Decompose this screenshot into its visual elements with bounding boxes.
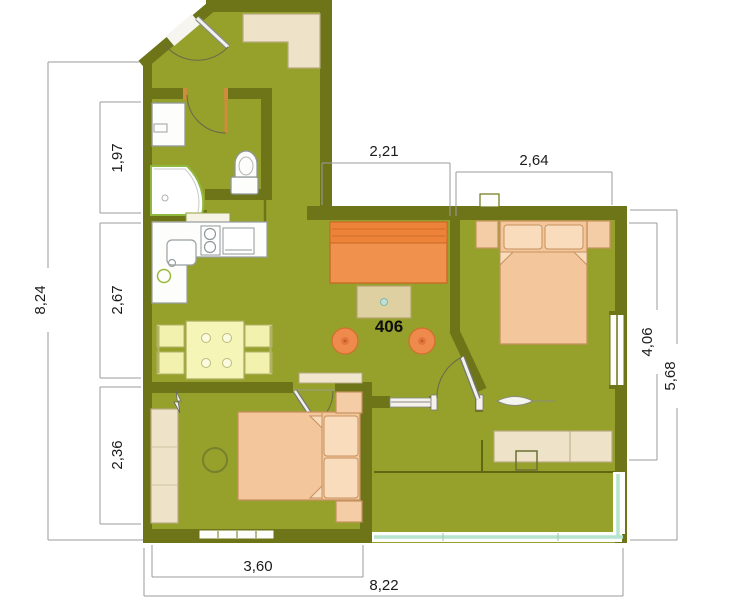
dining-table [186,321,244,379]
double-bed [238,412,360,500]
wardrobe [151,409,178,523]
stove [201,226,220,255]
dimension-left-kitchen: 2,67 [100,223,141,378]
dining-chair [245,325,272,347]
tv-shelf [299,373,362,383]
dimension-left-bathroom: 1,97 [100,102,141,213]
dining-chair [157,325,184,347]
dimension-top-hall: 2,21 [322,143,450,216]
dim-label: 1,97 [109,143,126,172]
dim-label: 2,36 [109,440,126,469]
vent-shaft [480,194,499,207]
dimension-bottom-bedroom2: 3,60 [152,545,363,577]
dim-label: 8,24 [32,285,49,314]
sofa [330,222,447,283]
dim-label: 5,68 [662,361,679,390]
wall-bath-right [261,88,272,198]
dimension-right-total: 5,68 [630,210,679,540]
window-right-wall [609,311,625,389]
dim-label: 3,60 [243,558,272,575]
nightstand [476,221,498,248]
wall-bedroom1-left [450,218,460,332]
window-bedroom2 [199,530,274,539]
floorplan-drawing: 406 [0,0,730,600]
washing-machine [152,103,185,146]
dim-label: 2,64 [519,152,548,169]
dim-label: 2,21 [369,143,398,160]
dimension-bottom-total: 8,22 [144,548,623,596]
dimension-left-bedroom2: 2,36 [100,387,141,524]
kitchen-sink [167,240,196,267]
kitchen-appliance [223,228,254,254]
dining-chair [157,352,184,374]
dim-label: 2,67 [109,285,126,314]
dim-label: 4,06 [639,327,656,356]
double-bed [500,221,587,344]
window-hall-panel [390,398,431,407]
floorplan-page: 406 [0,0,730,600]
wall-top [206,0,332,12]
stool [409,328,435,354]
coffee-table [357,286,411,318]
dimension-left-total: 8,24 [32,62,143,540]
nightstand [336,501,362,522]
wall-living-top [307,206,627,220]
desk [494,431,612,462]
dimension-right-bedroom1: 4,06 [629,223,657,460]
nightstand [336,392,362,413]
dining-chair [245,352,272,374]
stool [332,328,358,354]
wall-bath-top-left [143,88,187,99]
nightstand [587,221,610,248]
dim-label: 8,22 [369,577,398,594]
unit-number-label: 406 [375,317,403,336]
wall-bedroom2-top-left [143,382,293,393]
